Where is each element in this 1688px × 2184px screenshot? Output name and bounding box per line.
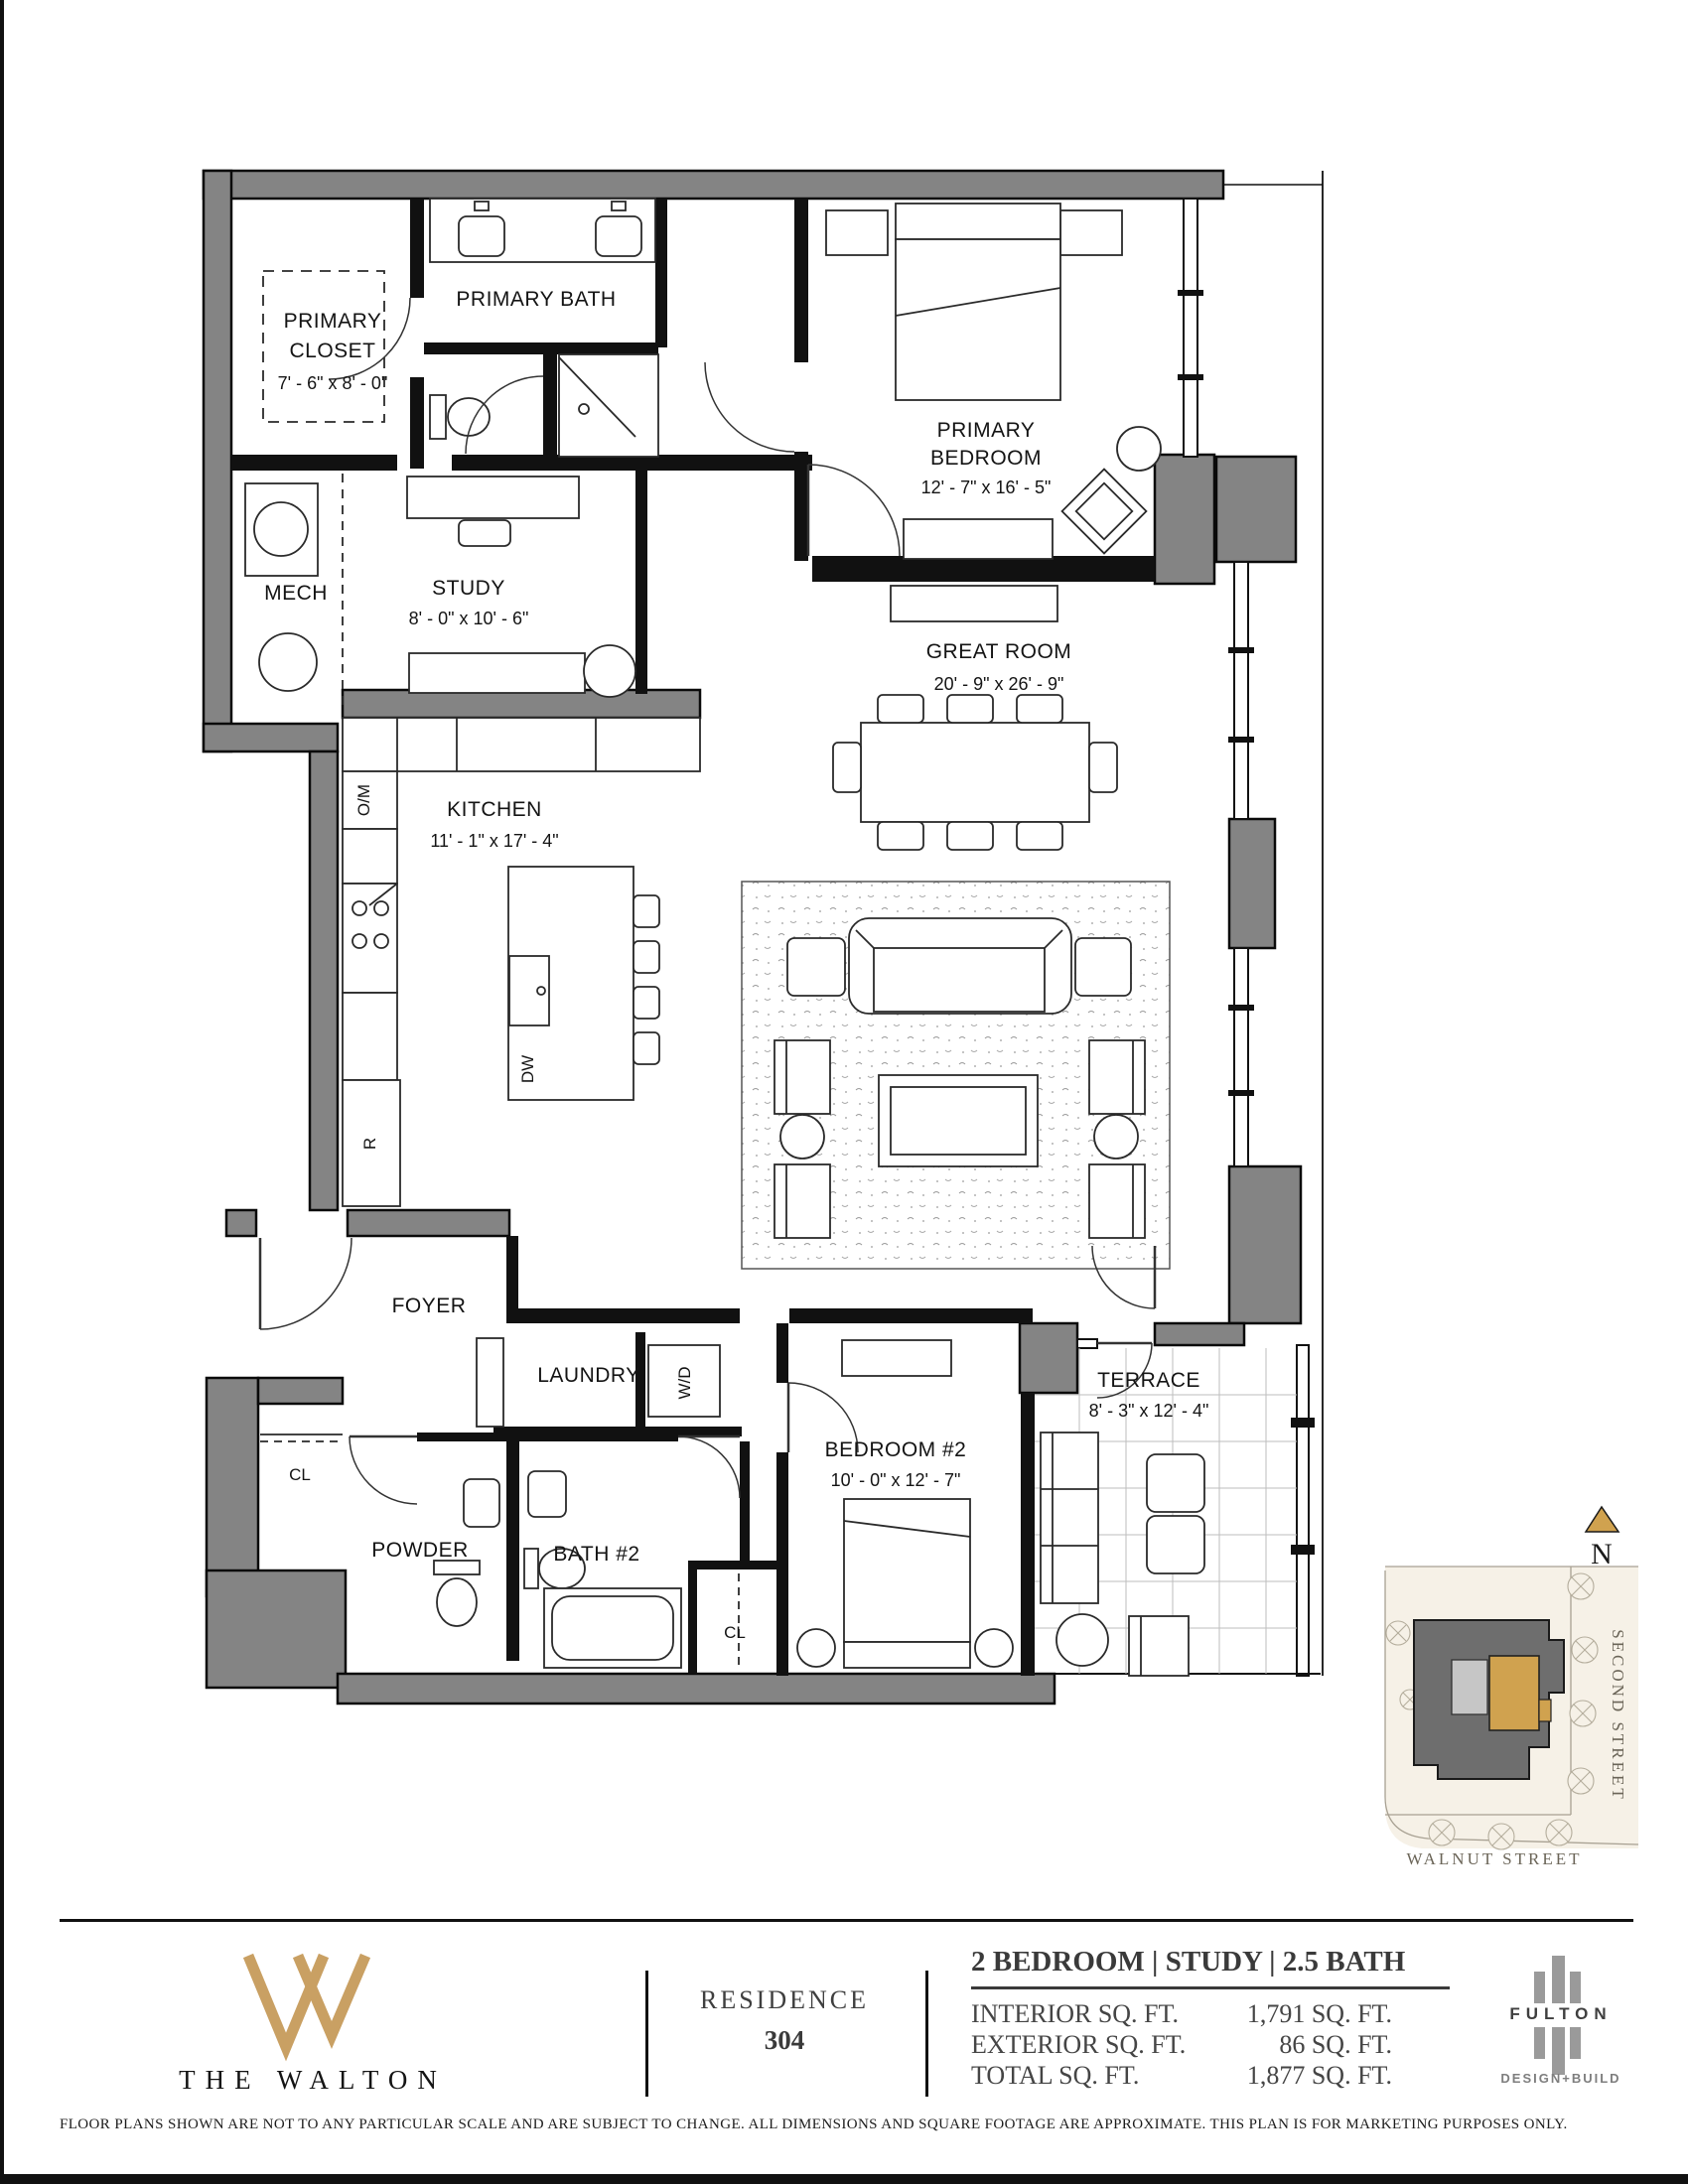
primary-bedroom-chair [1062,427,1161,553]
bedroom2-bed [797,1340,1013,1668]
label-bath2: BATH #2 [553,1543,639,1566]
north-arrow: N [1586,1507,1618,1570]
living-sofa [849,918,1071,1014]
entry-closet-rod [260,1434,343,1441]
bath2-fixtures [524,1471,681,1668]
dims-study: 8' - 0" x 10' - 6" [409,609,529,628]
site-map: N SECOND STREET WALNUT STREET [1385,1507,1638,1868]
sqft-value: 86 SQ. FT. [1279,2029,1392,2060]
primary-bed [826,204,1122,400]
builder-sub: DESIGN+BUILD [1479,2071,1642,2086]
footer-divider-2 [925,1971,928,2097]
page-left-edge [0,0,4,2184]
label-primary-closet: PRIMARY [284,310,382,333]
primary-shower [559,354,658,457]
coffee-table [879,1075,1038,1166]
dims-terrace: 8' - 3" x 12' - 4" [1089,1401,1209,1421]
footer-divider-1 [645,1971,648,2097]
floor-plan-sheet: PRIMARY CLOSET 7' - 6" x 8' - 0" PRIMARY… [0,0,1688,2184]
dining-set [833,586,1117,850]
label-study: STUDY [432,577,505,600]
label-north: N [1591,1538,1613,1570]
dims-primary-closet: 7' - 6" x 8' - 0" [278,373,388,393]
label-dw: DW [518,1055,537,1083]
study-desk [407,477,579,546]
label-cl-entry: CL [289,1465,311,1484]
dims-kitchen: 11' - 1" x 17' - 4" [430,831,558,851]
label-powder: POWDER [371,1539,469,1562]
label-laundry: LAUNDRY [537,1364,639,1387]
label-great-room: GREAT ROOM [926,640,1072,663]
sqft-value: 1,877 SQ. FT. [1247,2060,1392,2091]
label-primary-bedroom: PRIMARY [937,419,1036,442]
terrace-furniture [1041,1433,1204,1676]
study-bench [409,653,585,693]
dims-great-room: 20' - 9" x 26' - 9" [934,674,1064,694]
label-bedroom2: BEDROOM #2 [825,1438,967,1461]
label-primary-bedroom-2: BEDROOM [930,447,1042,470]
sqft-row-total: TOTAL SQ. FT. 1,877 SQ. FT. [971,2060,1392,2091]
label-kitchen: KITCHEN [447,798,542,821]
site-unit-304-tab [1539,1700,1551,1721]
disclaimer-text: FLOOR PLANS SHOWN ARE NOT TO ANY PARTICU… [60,2116,1609,2133]
primary-bedroom-dresser [904,519,1053,559]
label-om: O/M [354,784,373,816]
dims-primary-bedroom: 12' - 7" x 16' - 5" [921,478,1052,497]
label-primary-closet-2: CLOSET [289,340,375,362]
sqft-label: INTERIOR SQ. FT. [971,1998,1179,2029]
page-bottom-bar [0,2174,1688,2184]
unit-type-heading: 2 BEDROOM | STUDY | 2.5 BATH [971,1946,1468,1979]
study-table [584,645,635,697]
label-foyer: FOYER [392,1295,467,1317]
site-unit-304 [1489,1656,1539,1730]
label-mech: MECH [264,582,328,605]
residence-number: 304 [685,2025,884,2056]
label-terrace: TERRACE [1097,1369,1200,1392]
brand-name: THE WALTON [114,2065,511,2096]
site-unit-neighbor [1452,1660,1487,1714]
sqft-label: EXTERIOR SQ. FT. [971,2029,1186,2060]
builder-name: FULTON [1479,2004,1642,2024]
sqft-row-exterior: EXTERIOR SQ. FT. 86 SQ. FT. [971,2029,1392,2060]
label-r: R [360,1138,379,1150]
dims-bedroom2: 10' - 0" x 12' - 7" [831,1470,961,1490]
label-cl-bed2: CL [724,1623,746,1642]
sqft-value: 1,791 SQ. FT. [1247,1998,1392,2029]
walton-logo-monogram [248,1956,365,2047]
label-second-street: SECOND STREET [1609,1629,1627,1802]
primary-bath-vanity [430,199,655,262]
sqft-row-interior: INTERIOR SQ. FT. 1,791 SQ. FT. [971,1998,1392,2029]
residence-label: RESIDENCE [685,1985,884,2015]
label-primary-bath: PRIMARY BATH [456,288,616,311]
floor-plan-drawing: PRIMARY CLOSET 7' - 6" x 8' - 0" PRIMARY… [0,0,1688,2184]
sqft-table: INTERIOR SQ. FT. 1,791 SQ. FT. EXTERIOR … [971,1998,1392,2091]
sqft-label: TOTAL SQ. FT. [971,2060,1139,2091]
unit-type-underline [971,1986,1450,1989]
foyer-console [477,1338,503,1427]
label-walnut-street: WALNUT STREET [1406,1849,1582,1868]
footer-rule [60,1919,1633,1922]
primary-wc-toilet [430,395,490,439]
label-wd: W/D [675,1366,694,1399]
